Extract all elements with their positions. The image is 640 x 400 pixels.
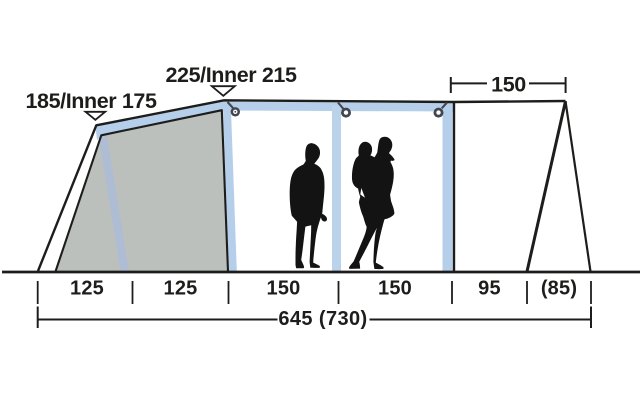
svg-text:150: 150 — [491, 73, 526, 97]
svg-text:95: 95 — [478, 278, 501, 300]
svg-text:150: 150 — [378, 278, 412, 300]
svg-text:645 (730): 645 (730) — [278, 308, 367, 330]
svg-text:125: 125 — [164, 278, 198, 300]
svg-text:185/Inner 175: 185/Inner 175 — [25, 89, 156, 113]
svg-text:225/Inner 215: 225/Inner 215 — [165, 63, 296, 87]
svg-text:125: 125 — [70, 278, 104, 300]
svg-text:(85): (85) — [541, 278, 577, 300]
svg-text:150: 150 — [267, 278, 301, 300]
